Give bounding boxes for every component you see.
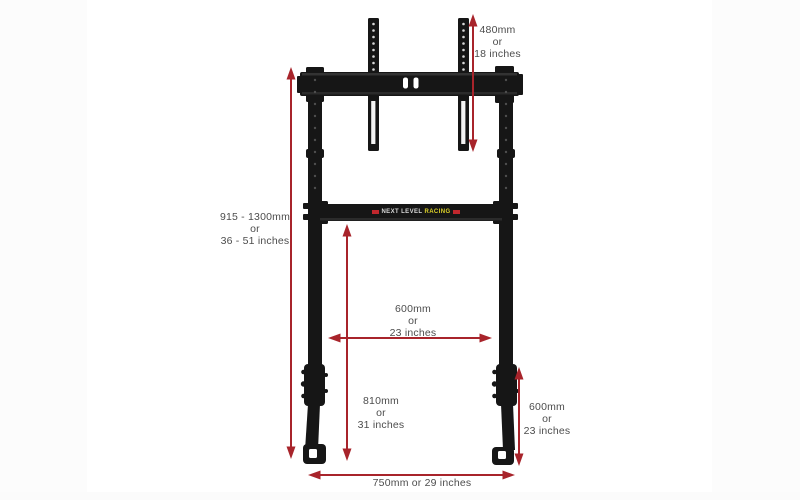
arrow-overall-height bbox=[287, 67, 296, 459]
crossbar-slot-1 bbox=[403, 78, 408, 89]
dim-conj: or bbox=[501, 413, 593, 425]
lower-leg-left bbox=[305, 404, 320, 450]
dim-conj: or bbox=[368, 315, 458, 327]
dim-mm: 480mm bbox=[455, 24, 540, 36]
dim-label-crossbar-height: 810mm or 31 inches bbox=[336, 395, 426, 431]
dim-conj: or bbox=[198, 223, 312, 235]
dim-conj: or bbox=[336, 407, 426, 419]
dim-label-vesa-height: 480mm or 18 inches bbox=[455, 24, 540, 60]
logo-red-block-right bbox=[453, 210, 460, 214]
leg-joint-left bbox=[301, 364, 328, 406]
logo-text-next-level: NEXT LEVEL bbox=[381, 209, 422, 215]
foot-left bbox=[303, 444, 326, 464]
dim-inches: 23 inches bbox=[501, 425, 593, 437]
logo-text-racing: RACING bbox=[424, 209, 450, 215]
dim-mm: 915 - 1300mm bbox=[198, 211, 312, 223]
dim-conj: or bbox=[455, 36, 540, 48]
foot-right bbox=[492, 447, 514, 465]
dim-inches: 36 - 51 inches bbox=[198, 235, 312, 247]
vesa-slot-left bbox=[371, 101, 375, 144]
leg-joint-right bbox=[492, 364, 519, 406]
dim-label-base-width: 750mm or 29 inches bbox=[342, 477, 502, 489]
dim-label-leg-height: 600mm or 23 inches bbox=[501, 401, 593, 437]
dim-label-inner-width: 600mm or 23 inches bbox=[368, 303, 458, 339]
dim-mm: 600mm bbox=[368, 303, 458, 315]
dim-mm: 600mm bbox=[501, 401, 593, 413]
logo-red-block-left bbox=[372, 210, 379, 214]
vesa-slot-right bbox=[461, 101, 465, 144]
dim-mm: 810mm bbox=[336, 395, 426, 407]
dim-inches: 31 inches bbox=[336, 419, 426, 431]
dim-label-overall-height: 915 - 1300mm or 36 - 51 inches bbox=[198, 211, 312, 247]
dim-inches: 23 inches bbox=[368, 327, 458, 339]
top-crossbar bbox=[297, 66, 523, 103]
dim-text: 750mm or 29 inches bbox=[342, 477, 502, 489]
upright-right bbox=[497, 80, 515, 371]
dim-inches: 18 inches bbox=[455, 48, 540, 60]
product-dimension-diagram: NEXT LEVEL RACING 480mm or 18 inches 915… bbox=[0, 0, 800, 500]
crossbar-slot-2 bbox=[414, 78, 419, 89]
brand-logo: NEXT LEVEL RACING bbox=[370, 207, 462, 216]
